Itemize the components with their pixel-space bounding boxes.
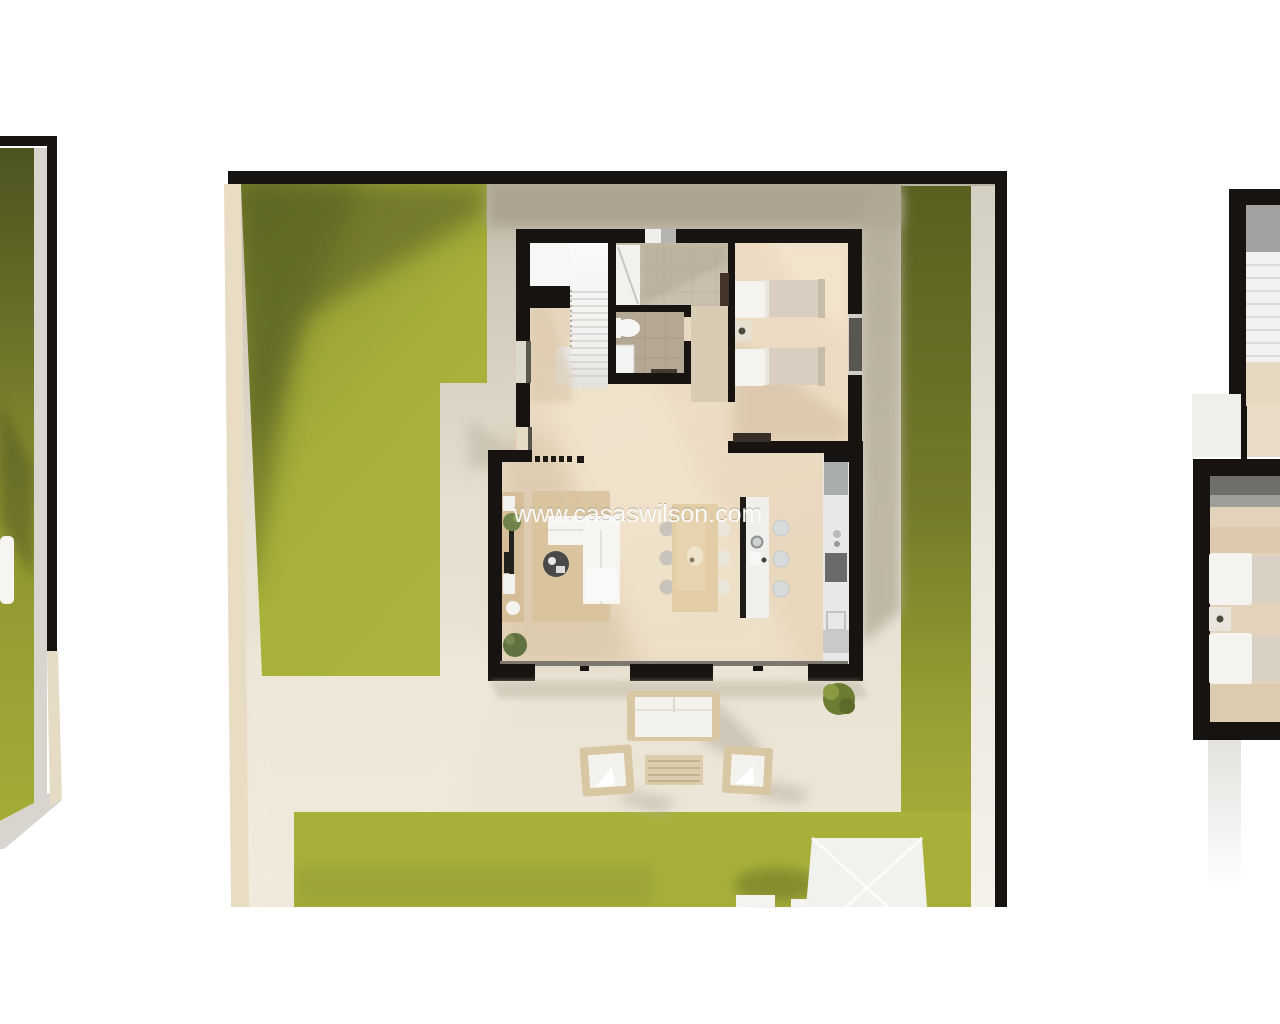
svg-text:www.casaswilson.com: www.casaswilson.com (513, 500, 763, 528)
